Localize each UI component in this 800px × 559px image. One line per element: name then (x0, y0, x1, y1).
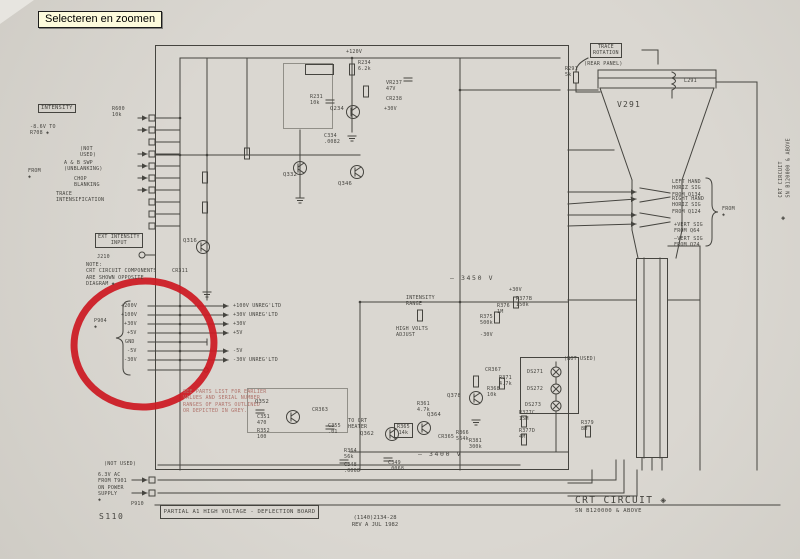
schematic-label: Q332 (283, 172, 297, 179)
title-block: CRT CIRCUIT ◈ SN B120000 & ABOVE (575, 495, 668, 514)
cathode-voltage-label: – 3450 V (450, 274, 494, 282)
schematic-label: +120V (346, 49, 362, 55)
schematic-label: C334 .0082 (324, 133, 340, 146)
schematic-label: TO CRT HEATER (348, 418, 367, 431)
parts-list-note: SEE PARTS LIST FOR EARLIER VALUES AND SE… (183, 389, 266, 414)
schematic-label: DS272 (527, 386, 543, 392)
schematic-label: -30V (124, 357, 137, 363)
schematic-label: A & B SWP (UNBLANKING) (64, 160, 103, 173)
schematic-label: FROM ◈ (28, 168, 41, 181)
schematic-label: RIGHT HAND HORIZ SIG FROM Q124 (672, 196, 704, 215)
schematic-label: +5V (233, 330, 243, 336)
schematic-label: R366 564k (456, 430, 469, 443)
page-code: S110 (99, 512, 124, 521)
schematic-label: R364 56k (344, 448, 357, 461)
connector-p904-label: P904 ◈ (94, 318, 107, 331)
schematic-label: R600 10k (112, 106, 125, 119)
schematic-label: R375 500k (480, 314, 493, 327)
schematic-label: R381 300k (469, 438, 482, 451)
schematic-label: (REAR PANEL) (584, 61, 623, 67)
schematic-label: +30V (509, 287, 522, 293)
trace-rotation-label: TRACE ROTATION (590, 43, 622, 58)
schematic-label: Q378 (447, 393, 461, 400)
schematic-label: (NOT USED) (104, 461, 136, 467)
serial-range: SN B120000 & ABOVE (575, 508, 668, 514)
schematic-label: GND (125, 339, 135, 345)
schematic-label: +30V (124, 321, 137, 327)
schematic-label: –VERT SIG FROM Q74 (674, 236, 703, 249)
schematic-label: R234 6.2k (358, 60, 371, 73)
schematic-label: INTENSITY RANGE (406, 295, 435, 308)
schematic-label: L291 (684, 78, 697, 84)
schematic-label: Q234 (330, 106, 344, 113)
crt-note: NOTE: CRT CIRCUIT COMPONENTS ARE SHOWN O… (86, 262, 157, 287)
side-tab: CRT CIRCUIT SN B120000 & ABOVE ◈ (778, 138, 793, 234)
schematic-label: +100V UNREG'LTD (233, 303, 281, 309)
schematic-label: R377D 4M (519, 428, 535, 441)
scanned-schematic-page: INTENSITYR600 10k-8.6V TO R708 ◈(NOT USE… (0, 0, 800, 559)
side-tab-text: CRT CIRCUIT SN B120000 & ABOVE (778, 138, 793, 198)
schematic-label: R365 14k (394, 423, 413, 438)
schematic-label: R231 10k (310, 94, 323, 107)
schematic-label: R352 100 (257, 428, 270, 441)
schematic-label: -30V UNREG'LTD (233, 357, 278, 363)
schematic-label: – 3400 V (418, 450, 462, 458)
schematic-label: R377C 15M (519, 410, 535, 423)
diagram-title: CRT CIRCUIT ◈ (575, 495, 668, 506)
schematic-label: C349 .0068 (388, 460, 404, 473)
diamond-icon: ◈ (781, 214, 785, 222)
schematic-label: Q352 (255, 399, 269, 406)
schematic-label: DS273 (525, 402, 541, 408)
schematic-label: R379 8M (581, 420, 594, 433)
board-banner: PARTIAL A1 HIGH VOLTAGE - DEFLECTION BOA… (160, 505, 319, 519)
schematic-labels-layer: INTENSITYR600 10k-8.6V TO R708 ◈(NOT USE… (0, 0, 800, 559)
schematic-label: +100V (121, 312, 137, 318)
schematic-label: CR363 (312, 407, 328, 413)
schematic-label: +200V (121, 303, 137, 309)
intensity-control-label: INTENSITY (38, 104, 76, 113)
schematic-label: DS271 (527, 369, 543, 375)
schematic-label: (NOT USED) (80, 146, 96, 159)
schematic-label: R291 5k (565, 66, 578, 79)
schematic-label: C351 470 (257, 414, 270, 427)
schematic-label: R376 1M (497, 303, 510, 316)
schematic-label: +30V UNREG'LTD (233, 312, 278, 318)
schematic-label: R371 4.7k (499, 375, 512, 388)
schematic-label: -5V (127, 348, 137, 354)
connector-p910-label: P910 (131, 501, 144, 507)
schematic-label: TRACE INTENSIFICATION (56, 191, 104, 204)
schematic-label: CR311 (172, 268, 188, 274)
schematic-label: +30V (384, 106, 397, 112)
schematic-label: FROM ◈ (722, 206, 735, 219)
schematic-label: CR365 (438, 434, 454, 440)
schematic-label: R368 10k (487, 386, 500, 399)
schematic-label: VR237 47V (386, 80, 402, 93)
schematic-label: C355 .01 (328, 423, 341, 436)
document-number: (1140)2134-28 (330, 515, 420, 522)
schematic-label: R377B 150k (516, 296, 532, 309)
schematic-label: CR238 (386, 96, 402, 102)
schematic-label: Q346 (338, 181, 352, 188)
schematic-label: Q316 (183, 238, 197, 245)
schematic-label: +VERT SIG FROM Q64 (674, 222, 703, 235)
document-number-block: (1140)2134-28 REV A JUL 1982 (330, 515, 420, 529)
schematic-label: J210 (97, 254, 110, 260)
ext-intensity-input-label: EXT INTENSITY INPUT (95, 233, 143, 248)
schematic-label: C348 .0068 (344, 462, 360, 475)
schematic-label: 6.3V AC FROM T901 ON POWER SUPPLY ◈ (98, 472, 127, 503)
schematic-label: CR367 (485, 367, 501, 373)
schematic-label: (NOT USED) (564, 356, 596, 362)
schematic-label: -5V (233, 348, 243, 354)
schematic-label: -30V (480, 332, 493, 338)
schematic-label: HIGH VOLTS ADJUST (396, 326, 428, 339)
schematic-label: +5V (127, 330, 137, 336)
schematic-label: Q362 (360, 431, 374, 438)
select-and-zoom-button[interactable]: Selecteren en zoomen (38, 11, 162, 28)
schematic-label: +30V (233, 321, 246, 327)
revision: REV A JUL 1982 (330, 522, 420, 529)
schematic-label: Q364 (427, 412, 441, 419)
schematic-label: CHOP BLANKING (74, 176, 100, 189)
schematic-label: LEFT HAND HORIZ SIG FROM Q134 (672, 179, 701, 198)
crt-tube-label: V291 (617, 100, 641, 110)
schematic-label: -8.6V TO R708 ◈ (30, 124, 56, 137)
